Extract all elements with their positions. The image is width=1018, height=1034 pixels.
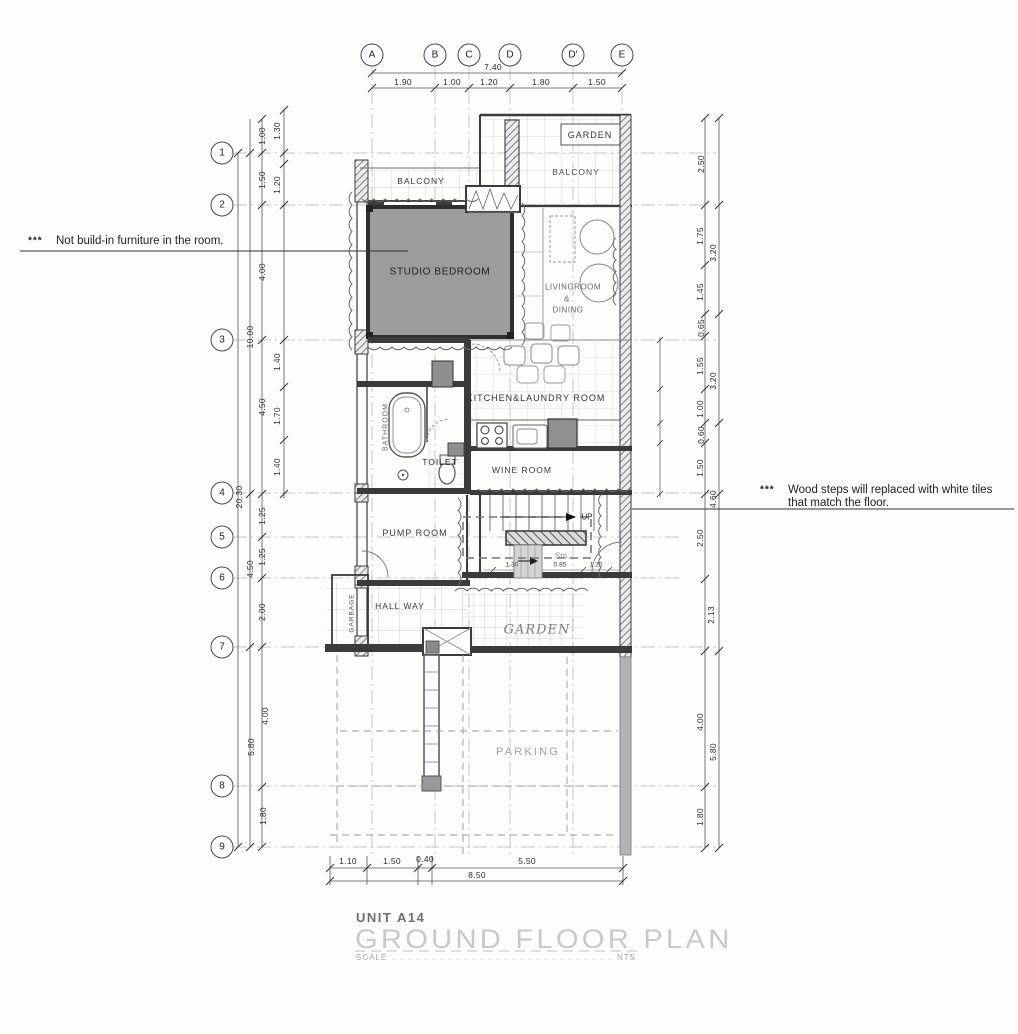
room-label-wine-room: WINE ROOM xyxy=(492,465,552,475)
room-label-dining: DINING xyxy=(553,306,584,315)
dim-right-12: 2.13 xyxy=(706,606,716,624)
grid-row-bubble-5: 5 xyxy=(211,526,234,549)
note2-marker: *** xyxy=(760,485,775,496)
grid-col-bubble-e: E xyxy=(611,44,634,67)
room-label-balcony-right: BALCONY xyxy=(552,167,600,177)
grid-col-bubble-a: A xyxy=(361,44,384,67)
dim-right-13: 4.00 xyxy=(695,713,705,731)
dim-left-6: 1.40 xyxy=(272,353,282,371)
dim-right-8: 0.60 xyxy=(696,426,706,444)
title-drawing-name: GROUND FLOOR PLAN xyxy=(355,924,733,955)
dim-left-1: 1.30 xyxy=(272,122,282,140)
note1-marker: *** xyxy=(28,236,43,247)
dim-left-16: 5.80 xyxy=(246,738,256,756)
dim-right-11: 2.50 xyxy=(695,529,705,547)
dim-stair-0: 1.30 xyxy=(506,562,519,569)
grid-row-bubble-9: 9 xyxy=(211,836,234,859)
dim-left-2: 1.50 xyxy=(257,171,267,189)
grid-col-bubble-b: B xyxy=(424,44,447,67)
grid-row-bubble-8: 8 xyxy=(211,775,234,798)
room-label-garden-bottom: GARDEN xyxy=(504,623,571,638)
dim-right-0: 2.50 xyxy=(696,155,706,173)
grid-col-bubble-c: C xyxy=(458,44,481,67)
room-label-livingroom: LIVINGROOM xyxy=(545,283,601,292)
room-label-garbage: GARBAGE xyxy=(349,593,356,632)
title-unit: UNIT A14 xyxy=(356,910,425,925)
dim-right-1: 1.75 xyxy=(695,227,705,245)
dim-bottom-1: 1.50 xyxy=(383,856,401,866)
grid-row-bubble-1: 1 xyxy=(211,142,234,165)
dim-right-2: 3.20 xyxy=(708,244,718,262)
room-label-studio-bedroom: STUDIO BEDROOM xyxy=(390,267,491,278)
room-label-pump-room: PUMP ROOM xyxy=(382,528,447,538)
yard-lines xyxy=(330,655,618,855)
grid-row-bubble-2: 2 xyxy=(211,194,234,217)
dim-right-9: 1.50 xyxy=(695,459,705,477)
staircase xyxy=(462,492,632,578)
dim-right-3: 1.45 xyxy=(695,283,705,301)
dim-left-4: 4.00 xyxy=(257,263,267,281)
dim-top-4: 1.80 xyxy=(532,77,550,87)
dim-top-3: 1.20 xyxy=(480,77,498,87)
dim-left-0: 1.00 xyxy=(257,127,267,145)
dim-right-15: 1.80 xyxy=(695,808,705,826)
room-label-balcony-left: BALCONY xyxy=(397,176,445,186)
dim-right-5: 1.55 xyxy=(695,357,705,375)
dim-bottom-2: 0.40 xyxy=(416,854,434,864)
dim-right-7: 1.00 xyxy=(695,400,705,418)
note2-text-line2: that match the floor. xyxy=(788,497,889,509)
note2-text-line1: Wood steps will replaced with white tile… xyxy=(788,484,992,496)
dim-right-6: 3.20 xyxy=(708,372,718,390)
dim-top-5: 1.50 xyxy=(588,77,606,87)
dim-bottom-total: 8.50 xyxy=(468,870,486,880)
dim-left-9: 1.40 xyxy=(272,458,282,476)
room-label-kitchen: KITCHEN&LAUNDRY ROOM xyxy=(467,393,606,403)
dim-right-14: 5.80 xyxy=(708,743,718,761)
dim-left-14: 2.00 xyxy=(257,603,267,621)
room-label-garden-top: GARDEN xyxy=(568,130,613,140)
room-label-bathroom: BATHROOM xyxy=(383,403,390,451)
dim-top-1: 1.90 xyxy=(394,77,412,87)
note1-text: Not build-in furniture in the room. xyxy=(56,235,223,247)
dim-top-total: 7.40 xyxy=(484,62,502,72)
room-label-hall-way: HALL WAY xyxy=(375,601,425,611)
grid-row-bubble-4: 4 xyxy=(211,482,234,505)
grid-row-bubble-6: 6 xyxy=(211,567,234,590)
grid-col-bubble-d: D xyxy=(499,44,522,67)
dim-right-4: 0.65 xyxy=(696,319,706,337)
dim-left-10: 20.30 xyxy=(234,486,244,509)
dim-left-8: 1.70 xyxy=(272,407,282,425)
dim-bottom-3: 5.50 xyxy=(518,856,536,866)
stair-up-label: UP xyxy=(581,513,592,522)
room-label-livingroom-amp: & xyxy=(564,295,570,304)
dim-stair-1: 0.85 xyxy=(554,562,567,569)
dim-left-5: 10.00 xyxy=(245,326,255,349)
room-label-toilet: TOILET xyxy=(422,457,458,467)
dim-left-13: 4.50 xyxy=(245,560,255,578)
dim-left-11: 1.25 xyxy=(257,507,267,525)
dim-right-10: 4.60 xyxy=(708,490,718,508)
dim-bottom-0: 1.10 xyxy=(339,856,357,866)
dim-left-7: 4.50 xyxy=(257,398,267,416)
room-label-sto: Sto. xyxy=(555,552,569,561)
title-scale-value: NTS xyxy=(617,953,636,962)
dim-stair-2: 1.25 xyxy=(590,562,603,569)
grid-row-bubble-7: 7 xyxy=(211,636,234,659)
grid-row-bubble-3: 3 xyxy=(211,329,234,352)
grid-col-bubble-dp: D' xyxy=(562,44,585,67)
dim-top-2: 1.00 xyxy=(443,77,461,87)
walls xyxy=(325,115,632,855)
dim-left-3: 1.20 xyxy=(272,176,282,194)
dim-left-12: 1.25 xyxy=(257,548,267,566)
floor-plan-canvas xyxy=(0,0,1018,1034)
room-label-parking: PARKING xyxy=(496,746,560,758)
dim-left-15: 4.00 xyxy=(260,707,270,725)
title-scale-label: SCALE xyxy=(356,953,387,962)
floor-plan-sheet: A B C D D' E 1 2 3 4 5 6 7 8 9 7.40 1.90… xyxy=(0,0,1018,1034)
dim-left-17: 1.80 xyxy=(258,807,268,825)
